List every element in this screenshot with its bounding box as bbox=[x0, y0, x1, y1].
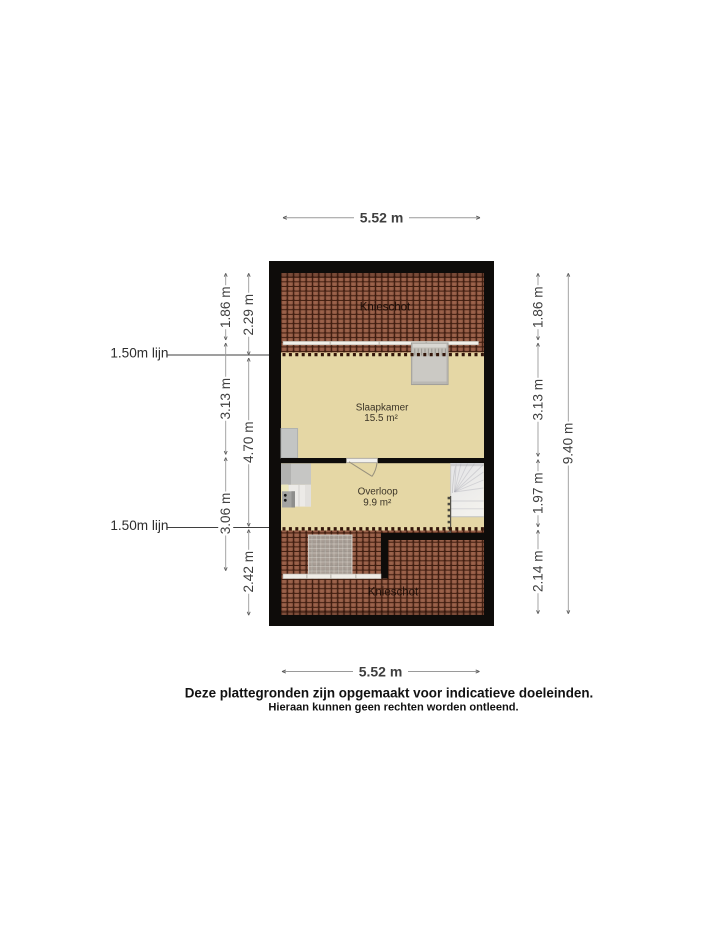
svg-text:Knieschot: Knieschot bbox=[360, 302, 411, 314]
svg-text:Overloop: Overloop bbox=[358, 486, 399, 497]
svg-text:4.70 m: 4.70 m bbox=[241, 421, 256, 463]
svg-text:3.13 m: 3.13 m bbox=[530, 379, 545, 421]
svg-text:2.14 m: 2.14 m bbox=[530, 550, 545, 592]
svg-text:Slaapkamer: Slaapkamer bbox=[356, 403, 409, 414]
svg-text:9.40 m: 9.40 m bbox=[561, 423, 576, 465]
svg-text:2.42 m: 2.42 m bbox=[241, 551, 256, 593]
svg-text:2.29 m: 2.29 m bbox=[241, 294, 256, 336]
svg-text:1.50m lijn: 1.50m lijn bbox=[110, 518, 168, 533]
svg-text:1.86 m: 1.86 m bbox=[218, 286, 233, 328]
svg-text:1.97 m: 1.97 m bbox=[530, 472, 545, 514]
svg-text:15.5 m²: 15.5 m² bbox=[364, 413, 398, 424]
svg-text:5.52 m: 5.52 m bbox=[359, 663, 403, 679]
svg-text:9.9 m²: 9.9 m² bbox=[363, 498, 392, 509]
svg-text:3.13 m: 3.13 m bbox=[218, 378, 233, 420]
svg-text:5.52 m: 5.52 m bbox=[360, 209, 404, 225]
svg-text:1.50m lijn: 1.50m lijn bbox=[110, 346, 168, 361]
svg-text:3.06 m: 3.06 m bbox=[218, 493, 233, 535]
svg-text:Knieschot: Knieschot bbox=[368, 587, 419, 599]
svg-text:1.86 m: 1.86 m bbox=[530, 286, 545, 328]
svg-text:Deze plattegronden zijn opgema: Deze plattegronden zijn opgemaakt voor i… bbox=[185, 686, 594, 701]
svg-text:Hieraan kunnen geen rechten wo: Hieraan kunnen geen rechten worden ontle… bbox=[268, 702, 518, 714]
